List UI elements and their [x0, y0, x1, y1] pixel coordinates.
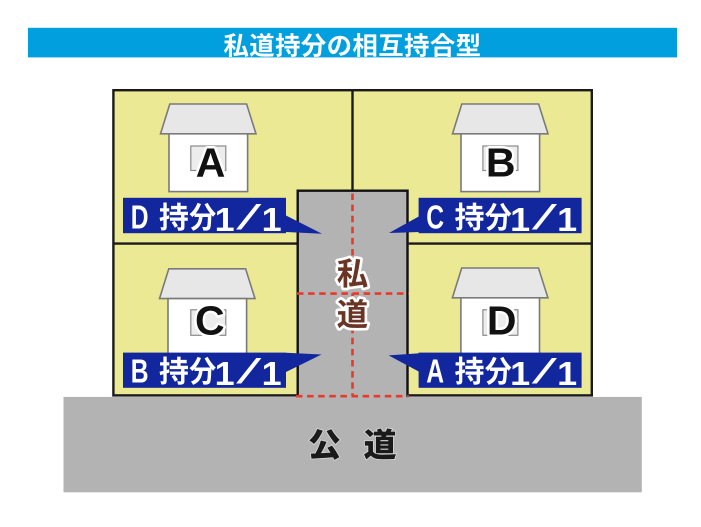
svg-text:D: D [487, 298, 517, 344]
svg-text:1: 1 [557, 201, 577, 238]
svg-text:A: A [196, 139, 226, 185]
svg-text:1: 1 [215, 201, 235, 238]
svg-text:C: C [195, 298, 225, 344]
svg-text:1: 1 [557, 355, 577, 392]
svg-text:1: 1 [510, 355, 530, 392]
svg-text:A: A [426, 352, 444, 389]
svg-text:1: 1 [510, 201, 530, 238]
svg-text:1: 1 [262, 201, 282, 238]
svg-text:B: B [486, 139, 516, 185]
svg-text:1: 1 [215, 355, 235, 392]
svg-text:D: D [131, 198, 149, 235]
svg-text:1: 1 [262, 355, 282, 392]
svg-text:B: B [131, 352, 149, 389]
svg-text:C: C [426, 198, 444, 235]
